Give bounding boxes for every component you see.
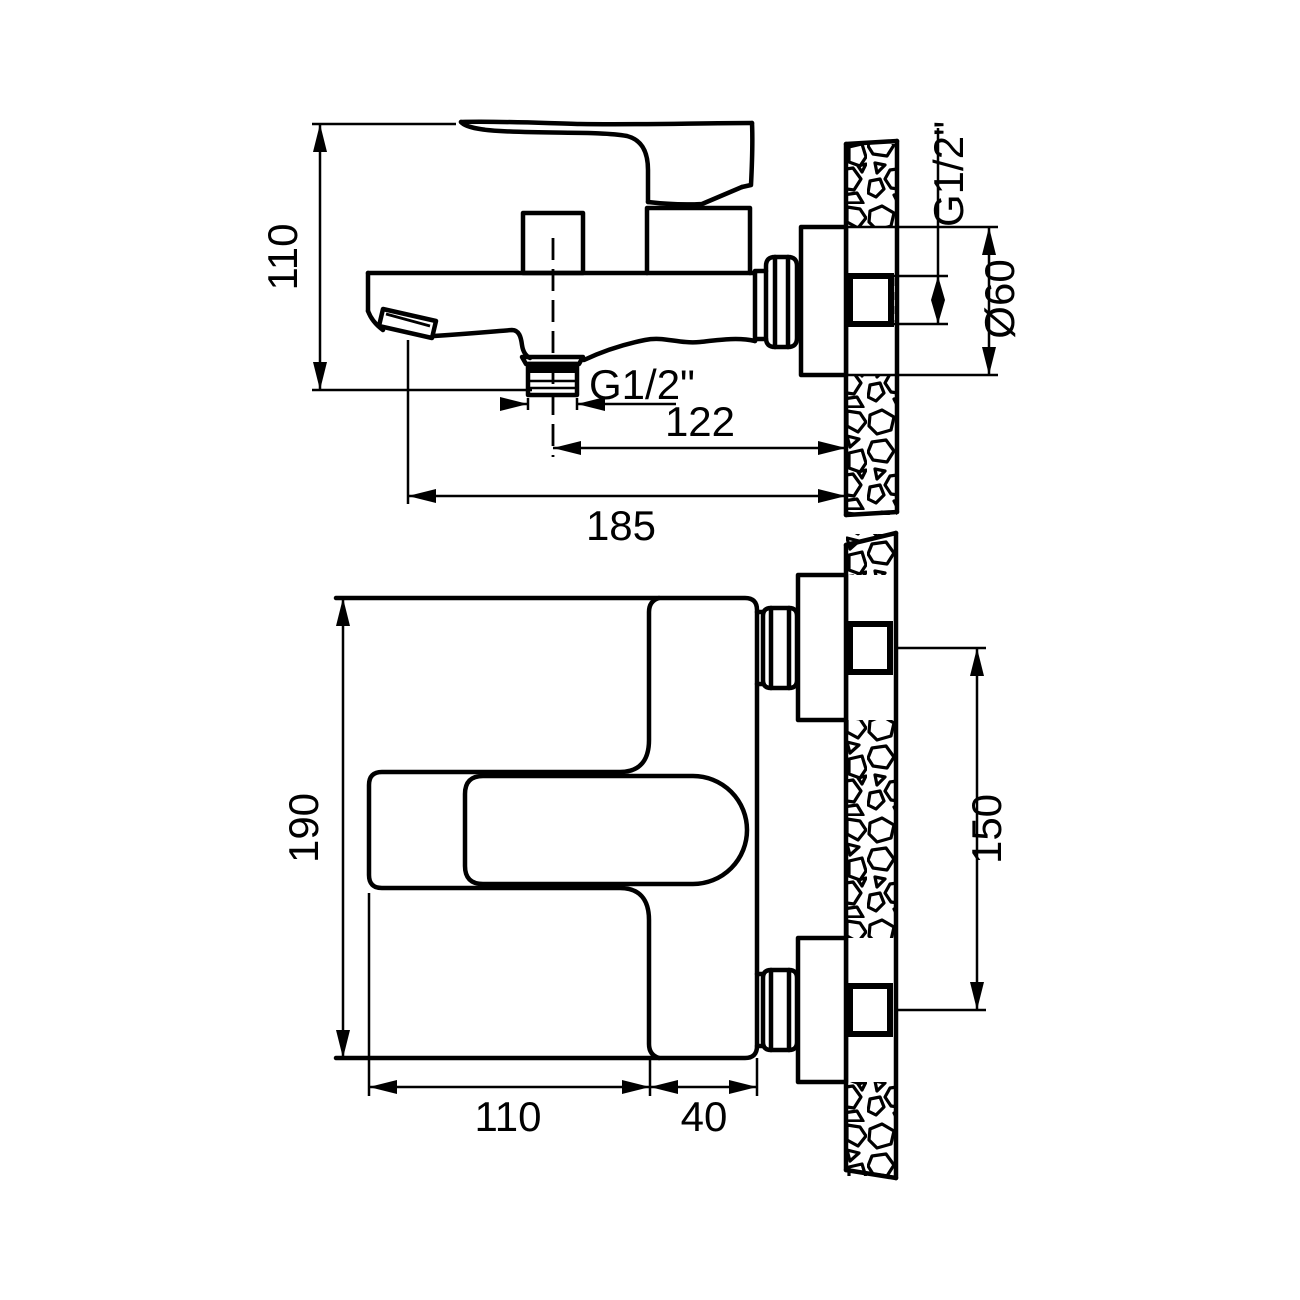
plan-view: 190 110 40 150 (280, 533, 1010, 1178)
wall-break-top (846, 141, 897, 144)
dim-110-lines (312, 124, 532, 390)
arrowhead-up (313, 124, 327, 152)
upper-wall-pipe-square (850, 624, 890, 672)
arrowhead-left (369, 1080, 397, 1094)
underside-right-contour (584, 339, 755, 360)
arrowhead-up (931, 276, 945, 300)
arrowhead-left (553, 441, 581, 455)
wall-hatch-bottom (846, 1082, 896, 1176)
faucet-plan-outline (336, 575, 890, 1082)
arrowhead-left (408, 489, 436, 503)
dim-110-40-lines (369, 893, 757, 1096)
lower-hex-nut (763, 970, 797, 1050)
hex-nut-facets (775, 257, 788, 347)
arrowhead-up (336, 598, 350, 626)
dim-height-190: 190 (280, 598, 350, 1058)
dim-wall-thread: G1/2" (891, 121, 972, 324)
handle-top-edge (461, 122, 752, 125)
arrowhead-down (982, 347, 996, 375)
arrowhead-left (650, 1080, 678, 1094)
lower-escutcheon (798, 938, 846, 1082)
drawing-sheet: 110 G1/2" 122 185 G1/2" (0, 0, 1300, 1300)
lever-knob-outline (465, 776, 747, 884)
dim-label-tip-to-wall: 185 (586, 502, 656, 549)
lower-hex-nut-facets (771, 970, 789, 1050)
arrowhead-up (982, 227, 996, 255)
arrowhead-down (313, 362, 327, 390)
dim-label-body-depth: 40 (681, 1093, 728, 1140)
wall-hatch-upper (846, 144, 897, 227)
body-outline (336, 598, 757, 1058)
arrowhead-right (500, 397, 528, 411)
wall-pipe-square (850, 276, 891, 324)
upper-escutcheon (798, 575, 846, 720)
handle-underside-edge (461, 122, 648, 202)
dim-label-height: 110 (259, 224, 306, 291)
handle-back-contour (648, 187, 742, 204)
faucet-technical-drawing: 110 G1/2" 122 185 G1/2" (0, 0, 1300, 1300)
wall-break-bottom (846, 512, 897, 515)
dim-label-port-spacing: 150 (963, 794, 1010, 864)
arrowhead-down (931, 300, 945, 324)
dim-port-spacing-150: 150 (896, 648, 1010, 1010)
dim-label-lever-length: 110 (475, 1093, 542, 1140)
handle-back-edge (742, 123, 752, 187)
underside-left-contour (434, 330, 530, 358)
hex-nut (766, 257, 797, 347)
escutcheon (801, 227, 846, 375)
dim-label-center-to-wall: 122 (665, 398, 735, 445)
arrowhead-up (970, 648, 984, 676)
dim-label-plan-height: 190 (280, 793, 327, 863)
arrowhead-right (622, 1080, 650, 1094)
arrowhead-right (729, 1080, 757, 1094)
dim-label-wall-thread: G1/2" (925, 121, 972, 227)
dim-height-110: 110 (259, 124, 532, 390)
side-view: 110 G1/2" 122 185 G1/2" (259, 121, 1023, 549)
upper-hex-nut-facets (771, 608, 789, 688)
lower-wall-pipe-square (850, 986, 890, 1034)
upper-hex-nut (763, 608, 797, 688)
wall-hatch-middle (846, 720, 896, 938)
arrowhead-right (818, 489, 846, 503)
wall-section-side-view (846, 141, 897, 515)
arrowhead-right (818, 441, 846, 455)
wall-hatch-lower (846, 375, 897, 515)
lever-outer-outline (369, 598, 659, 1058)
arrowhead-down (970, 982, 984, 1010)
cartridge-housing (647, 208, 750, 273)
dim-label-escutcheon: Ø60 (976, 259, 1023, 338)
dim-110-40: 110 40 (369, 893, 757, 1140)
arrowhead-down (336, 1030, 350, 1058)
